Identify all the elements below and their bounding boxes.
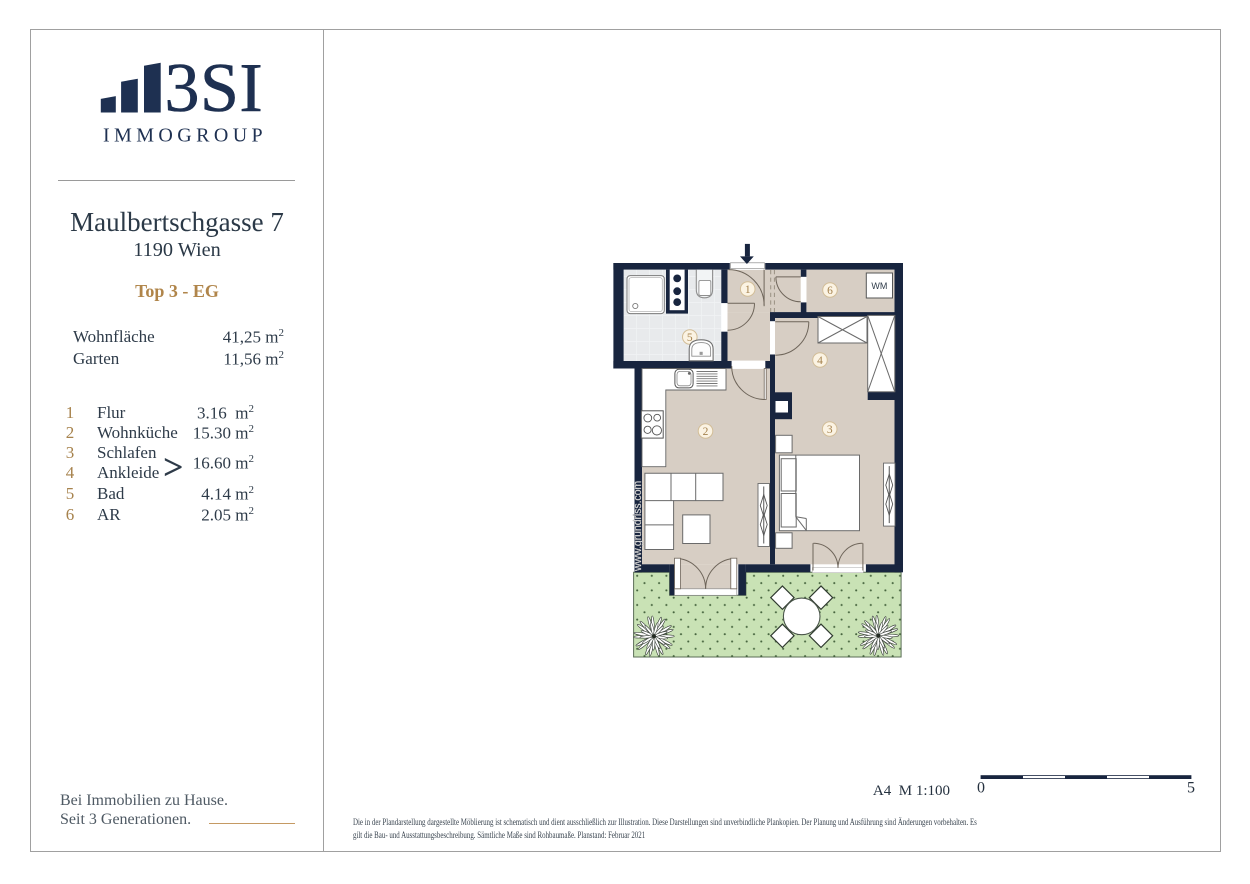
svg-text:2: 2 <box>703 426 709 438</box>
svg-text:1: 1 <box>745 284 751 296</box>
svg-text:WM: WM <box>871 281 887 291</box>
svg-text:4: 4 <box>817 355 823 367</box>
svg-text:3: 3 <box>827 424 833 436</box>
svg-text:www.grundriss.com: www.grundriss.com <box>632 481 644 572</box>
svg-text:6: 6 <box>827 285 833 297</box>
